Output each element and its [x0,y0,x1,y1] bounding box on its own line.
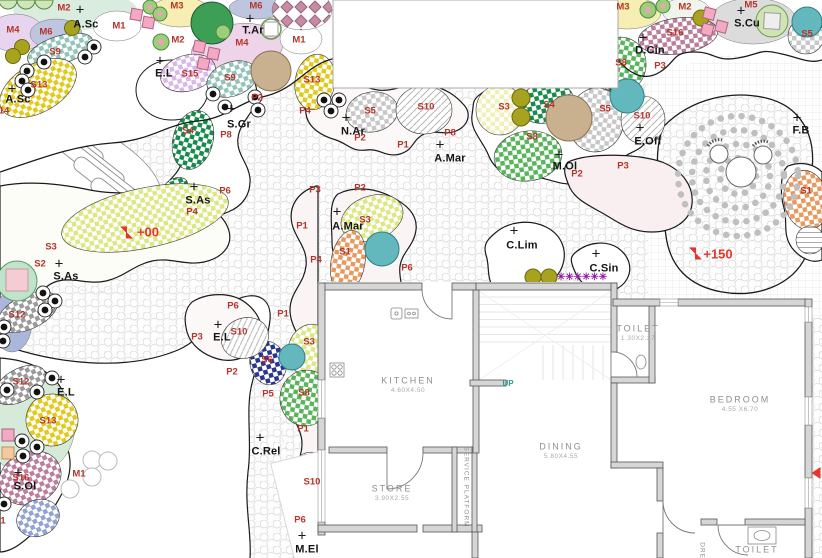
scallop-hedge [0,0,53,9]
tree-tan [546,95,592,141]
table [726,157,756,187]
planter-square [764,13,781,30]
site-plan-canvas [0,0,822,558]
floor-plan [318,282,812,558]
pink-planter [6,269,28,291]
tree-teal [279,344,305,370]
tree-tan [251,51,291,91]
chair [710,145,728,163]
tree-teal [792,7,822,37]
upper-building-footprint [333,0,618,88]
tree-teal [365,232,399,266]
planter-square [264,22,278,36]
chair [754,146,772,164]
site-plan-screenshot: +A.Sc+A.Sc+T.Ar+E.L+S.Gr+S.As+S.As+N.Ar+… [0,0,822,558]
